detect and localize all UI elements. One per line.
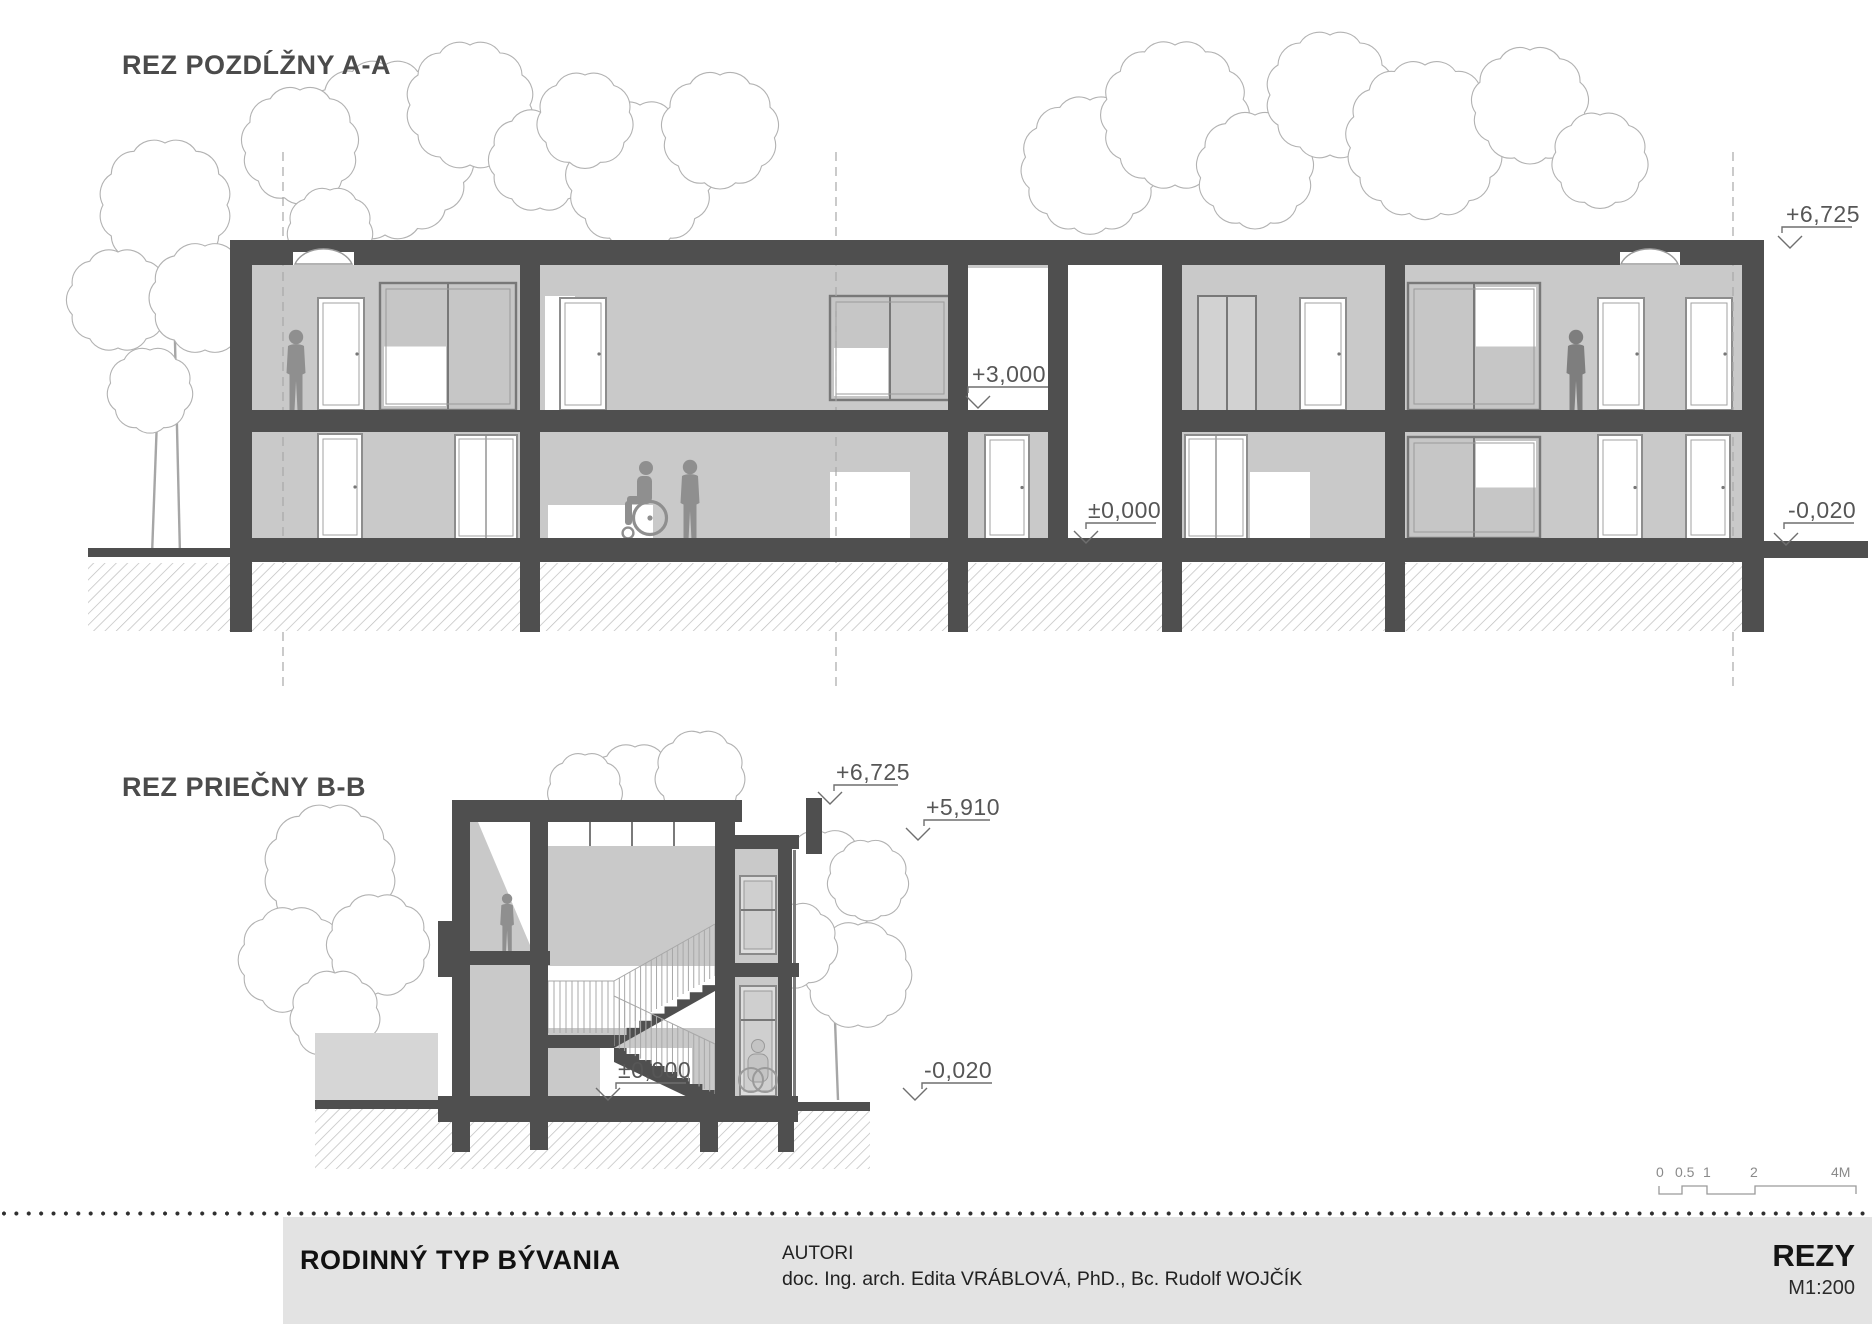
section-b-title: REZ PRIEČNY B-B xyxy=(122,772,366,803)
level-marker-b-canopy: +5,910 xyxy=(906,794,1000,840)
svg-text:4M: 4M xyxy=(1831,1164,1850,1180)
authors-names: doc. Ing. arch. Edita VRÁBLOVÁ, PhD., Bc… xyxy=(782,1268,1302,1291)
project-title: RODINNÝ TYP BÝVANIA xyxy=(300,1245,621,1276)
svg-text:+6,725: +6,725 xyxy=(836,759,910,785)
dotted-separator xyxy=(0,1210,1872,1217)
level-marker-a-roof: +6,725 xyxy=(1778,201,1860,248)
level-marker-a-terrain: -0,020 xyxy=(1774,497,1856,545)
svg-text:+3,000: +3,000 xyxy=(972,361,1046,387)
level-marker-b-roof: +6,725 xyxy=(818,759,910,804)
drawing-title: REZY xyxy=(1772,1238,1855,1274)
svg-text:2: 2 xyxy=(1750,1164,1758,1180)
logo-area: STU FAD CEDA centre of design for all xyxy=(0,1217,283,1324)
elevator-door-upper xyxy=(740,876,776,954)
soil-hatch-a xyxy=(88,563,1764,631)
svg-text:1: 1 xyxy=(1703,1164,1711,1180)
svg-text:±0,000: ±0,000 xyxy=(618,1057,691,1083)
svg-text:+6,725: +6,725 xyxy=(1786,201,1860,227)
svg-text:-0,020: -0,020 xyxy=(924,1057,992,1083)
svg-text:-0,020: -0,020 xyxy=(1788,497,1856,523)
svg-text:±0,000: ±0,000 xyxy=(1088,497,1161,523)
drawing-scale: M1:200 xyxy=(1788,1277,1855,1300)
level-marker-b-terrain: -0,020 xyxy=(903,1057,992,1100)
svg-text:0.5: 0.5 xyxy=(1675,1164,1695,1180)
svg-text:0: 0 xyxy=(1656,1164,1664,1180)
section-a-title: REZ POZDĹŽNY A-A xyxy=(122,50,391,81)
svg-text:+5,910: +5,910 xyxy=(926,794,1000,820)
drawing-sheet: REZ POZDĹŽNY A-A REZ PRIEČNY B-B xyxy=(0,0,1872,1324)
sections-drawing: +6,725 +3,000 ±0,000 -0,020 +6,725 +5,91… xyxy=(0,0,1872,1210)
authors-label: AUTORI xyxy=(782,1243,853,1265)
scale-bar: 0 0.5 1 2 4M xyxy=(1656,1164,1856,1194)
planter xyxy=(315,1033,438,1100)
section-a-rooms xyxy=(233,262,1764,540)
